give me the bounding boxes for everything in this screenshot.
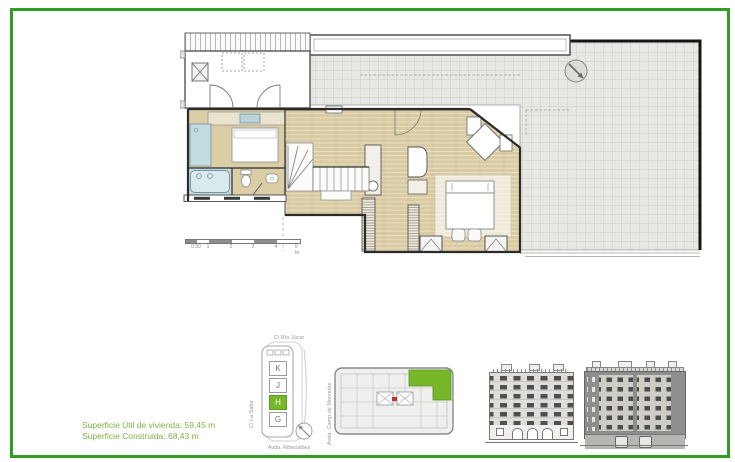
scale-label: 5 m xyxy=(295,244,299,256)
bathroom-tub xyxy=(188,168,232,195)
floor-plan xyxy=(180,25,725,270)
street-top-label: C/ Río Júcar xyxy=(241,335,337,341)
skylight-icon xyxy=(192,63,208,81)
scale-bar-segments xyxy=(185,239,301,244)
door-arch xyxy=(527,428,538,439)
elevation-front xyxy=(489,364,574,443)
drawing-sheet: 0.50 1 2 3 4 5 m Superficie Útil de vivi… xyxy=(0,0,735,462)
toilet xyxy=(242,175,251,187)
wardrobe xyxy=(408,205,419,251)
facade-window-panel xyxy=(637,375,671,431)
block-k: K xyxy=(269,361,287,376)
scale-label: 0.50 xyxy=(191,244,201,250)
bathroom-wc xyxy=(232,168,285,195)
block-h-highlighted: H xyxy=(269,395,287,410)
door-arch xyxy=(542,428,553,439)
scale-label: 2 xyxy=(230,244,233,250)
bedroom xyxy=(188,110,285,168)
bed xyxy=(435,175,511,241)
curved-unit xyxy=(408,147,427,177)
side-facade xyxy=(584,371,686,439)
scale-label: 1 xyxy=(207,244,210,250)
ground-line xyxy=(580,445,688,446)
block-g: G xyxy=(269,412,287,427)
block-j: J xyxy=(269,378,287,393)
elevation-side xyxy=(584,361,686,446)
facade-window-band xyxy=(184,195,286,202)
roof-hatch-band xyxy=(185,33,310,51)
scale-bar: 0.50 1 2 3 4 5 m xyxy=(185,239,301,253)
door-arch xyxy=(615,436,628,448)
armchair xyxy=(420,236,442,252)
light-well xyxy=(377,392,393,405)
pergola xyxy=(310,35,570,55)
superficie-construida-label: Superficie Construida: 68,43 m xyxy=(82,431,215,442)
facade-windows xyxy=(489,372,574,427)
wardrobe xyxy=(190,124,211,166)
area-legend: Superficie Útil de vivienda: 59,45 m Sup… xyxy=(82,420,215,442)
street-bottom-label: Avda. Ribesalbes xyxy=(241,445,337,451)
site-key-outline xyxy=(241,333,337,455)
door-arch xyxy=(639,436,652,448)
superficie-util-label: Superficie Útil de vivienda: 59,45 m xyxy=(82,420,215,431)
ground-floor xyxy=(585,434,685,449)
scale-label: 3 xyxy=(252,244,255,250)
you-are-here-marker xyxy=(392,397,397,401)
window xyxy=(560,428,568,436)
compass-icon xyxy=(296,423,312,439)
light-well xyxy=(397,392,413,405)
key-plan xyxy=(333,362,457,440)
scale-label: 4 xyxy=(275,244,278,250)
street-left-label: C/ La Safor xyxy=(249,400,255,428)
sink xyxy=(240,114,260,123)
facade-window-panel xyxy=(599,375,633,431)
armchair xyxy=(485,236,507,252)
ground-line xyxy=(485,442,578,443)
site-key-map: C/ Río Júcar C/ La Safor Avda. Camp de M… xyxy=(241,333,337,455)
bed xyxy=(232,128,278,162)
window xyxy=(496,428,504,436)
side-window-strip xyxy=(587,375,595,431)
ground-floor xyxy=(489,425,574,440)
bidet xyxy=(266,174,278,183)
upper-room xyxy=(180,33,310,108)
compass-icon xyxy=(565,60,587,82)
door-arch xyxy=(512,428,523,439)
